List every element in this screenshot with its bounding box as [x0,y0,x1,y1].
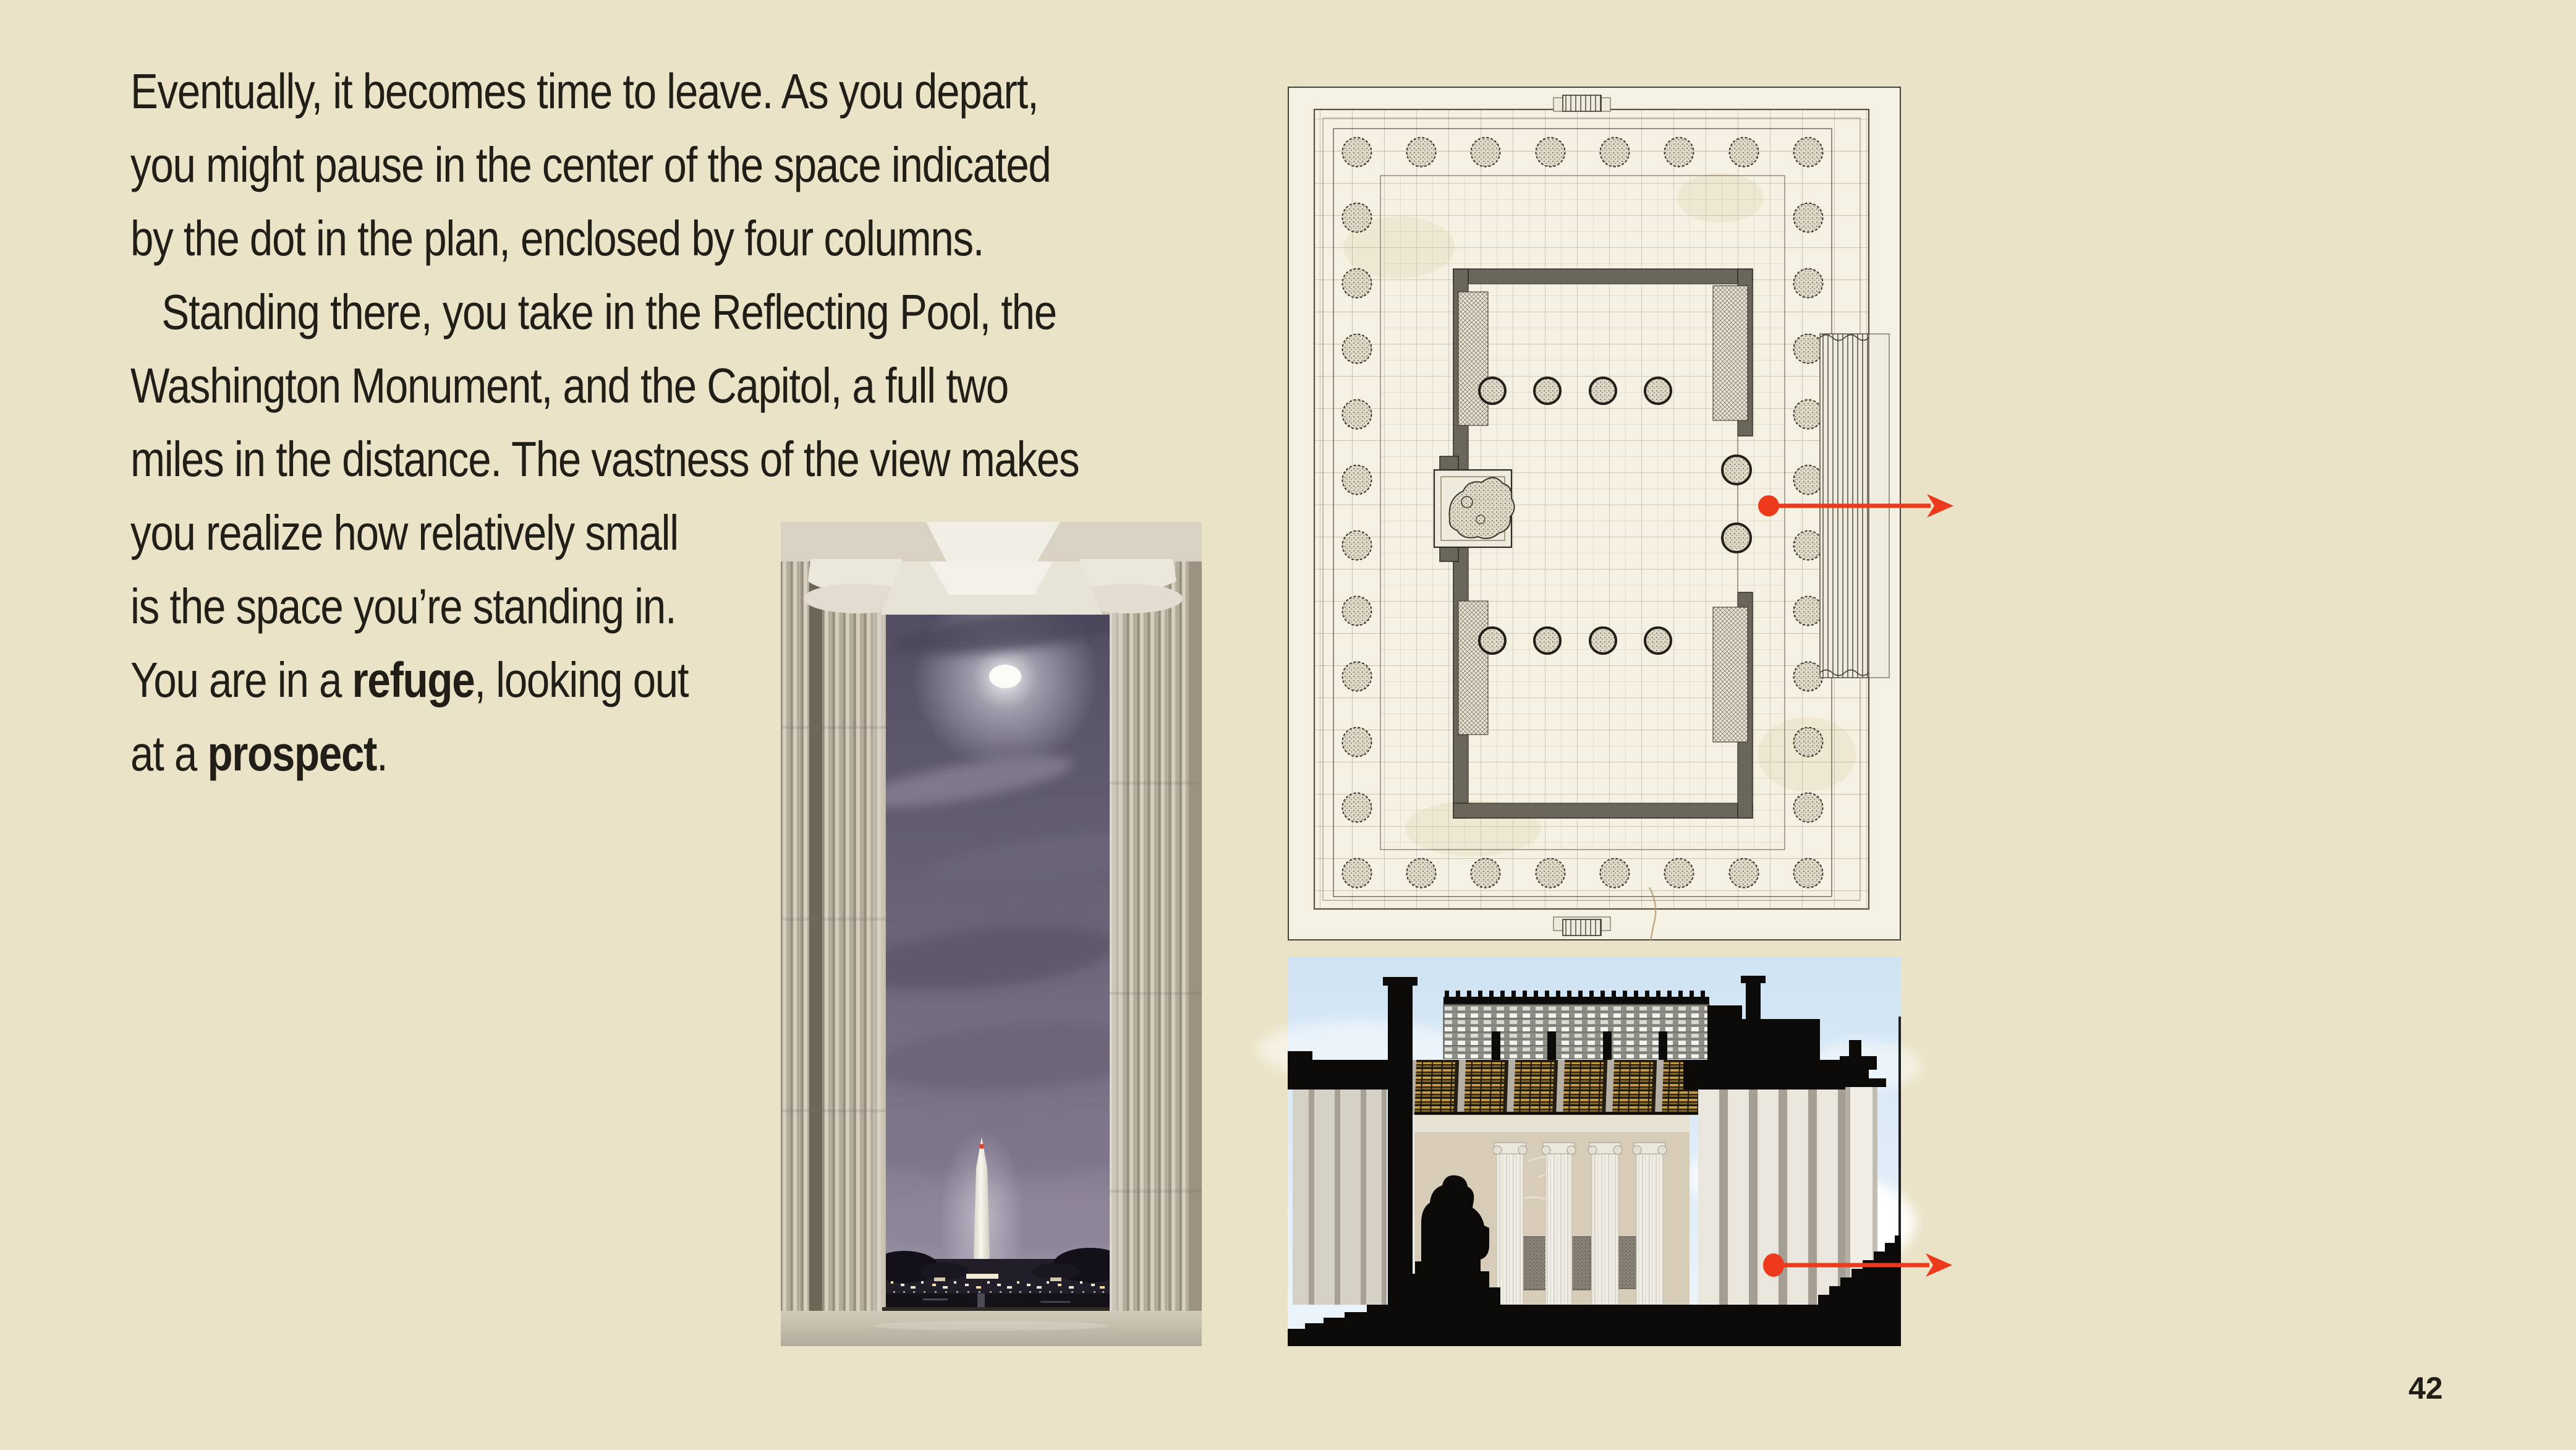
text-run: is the space you’re standing in. [130,579,676,634]
text-line: Washington Monument, and the Capitol, a … [130,349,1079,422]
plan-red-dot-icon [1758,495,1779,516]
section-red-dot-icon [1763,1253,1784,1277]
section-drawing [1288,957,1901,1346]
arrowhead-icon [1927,494,1953,518]
text-line: miles in the distance. The vastness of t… [130,422,1079,496]
book-page: { "page": { "background": "#ebe3c7", "te… [0,0,2576,1450]
aircraft-warning-light [979,1144,984,1149]
text-run: Washington Monument, and the Capitol, a … [130,358,1008,413]
memorial-floor [781,1307,1202,1346]
text-line: Standing there, you take in the Reflecti… [130,275,1079,349]
attic-grille [1443,991,1709,1060]
text-run: Standing there, you take in the Reflecti… [161,284,1056,339]
text-run: you realize how relatively small [130,505,678,560]
photo-washington-monument [781,522,1202,1346]
arrowhead-icon [1926,1253,1952,1277]
keyword-bold: prospect [207,726,376,781]
figure-floor-plan [1288,87,1901,940]
page-number: 42 [2408,1370,2443,1406]
lintel-and-capitals [781,522,1202,615]
text-run: at a [130,726,207,781]
monument-photo-graphic [781,522,1202,1346]
floor-plan-drawing [1288,87,1901,940]
statue-plan [1434,470,1515,547]
text-run: miles in the distance. The vastness of t… [130,432,1079,487]
text-run: by the dot in the plan, enclosed by four… [130,211,984,266]
text-run: . [376,726,387,781]
coffered-ceiling [1408,1060,1714,1115]
text-line: by the dot in the plan, enclosed by four… [130,202,1079,275]
figure-section [1288,957,1901,1346]
text-run: , looking out [474,652,688,707]
text-line: Eventually, it becomes time to leave. As… [130,54,1079,128]
text-run: you might pause in the center of the spa… [130,137,1051,192]
moon [989,665,1021,688]
text-run: You are in a [130,652,352,707]
east-colonnade [1698,1087,1877,1305]
keyword-bold: refuge [352,652,475,707]
text-line: you might pause in the center of the spa… [130,128,1079,202]
text-run: Eventually, it becomes time to leave. As… [130,64,1038,119]
